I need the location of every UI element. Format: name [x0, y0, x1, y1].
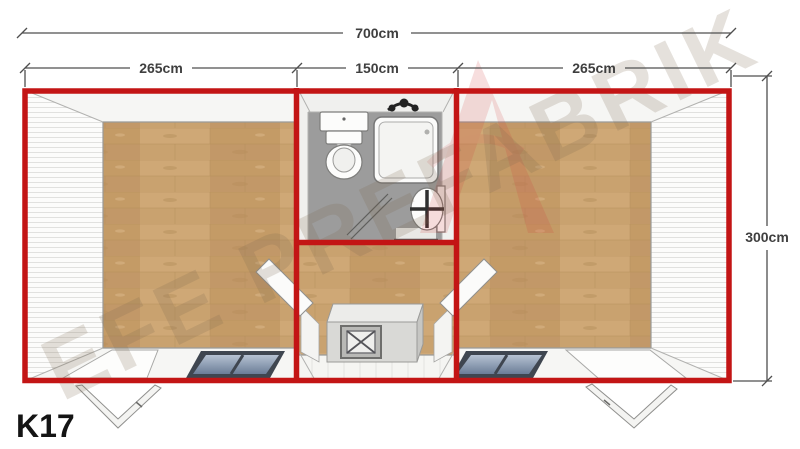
right-room-side-wall [651, 91, 727, 380]
shower-head [400, 99, 409, 108]
toilet-tank [326, 131, 362, 144]
right-door-leaf [586, 384, 677, 428]
floorplan-drawing: EFE PREFABRIK 700cm 265cm 150cm 265cm 30… [0, 0, 800, 449]
bathroom-sink-faucet [342, 117, 345, 120]
plan: EFE PREFABRIK [25, 0, 773, 428]
dim-label-center: 150cm [355, 60, 399, 76]
shower-knob-left [389, 105, 396, 112]
dim-label-total: 700cm [355, 25, 399, 41]
model-label: K17 [16, 408, 75, 444]
dim-label-depth: 300cm [745, 229, 789, 245]
toilet-bowl-inner [333, 148, 355, 172]
shower-knob-right [412, 105, 419, 112]
counter-top [327, 304, 423, 322]
dim-label-right: 265cm [572, 60, 616, 76]
dim-label-left: 265cm [139, 60, 183, 76]
floorplan-canvas: EFE PREFABRIK 700cm 265cm 150cm 265cm 30… [0, 0, 800, 449]
bathroom-sink [320, 112, 368, 131]
